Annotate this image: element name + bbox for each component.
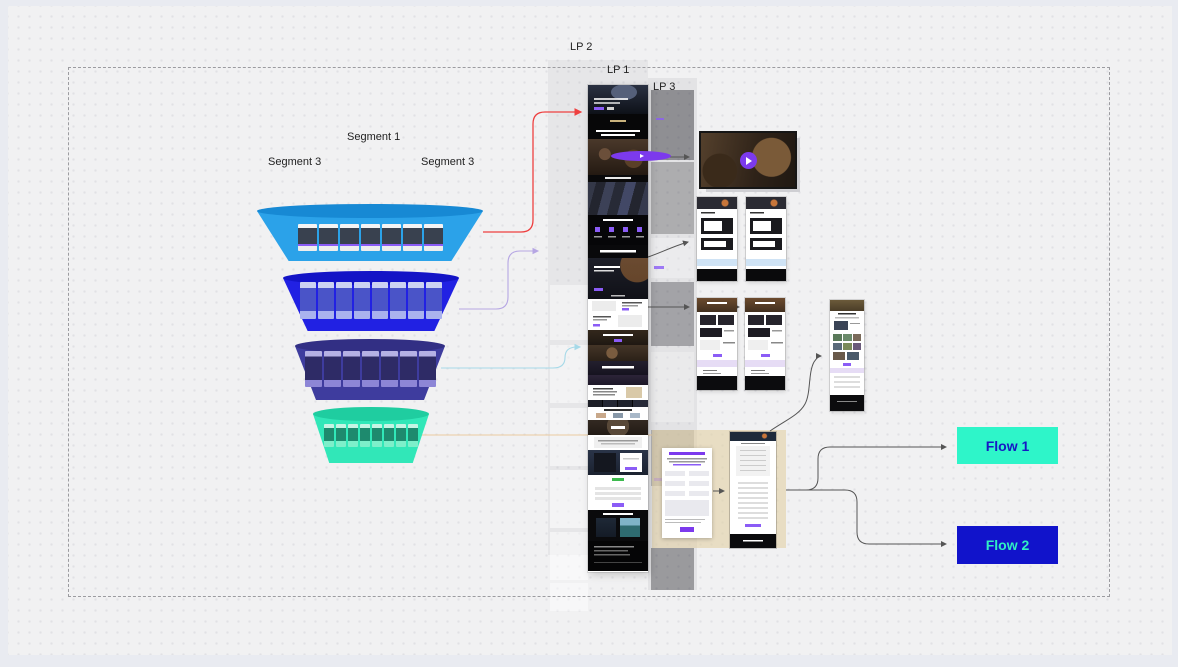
ad-thumbnail (382, 224, 401, 251)
label-segment-1[interactable]: Segment 1 (347, 131, 400, 143)
ad-thumbnail (362, 351, 379, 387)
ad-thumbnail (324, 424, 334, 447)
ad-thumbnail (336, 282, 352, 319)
lp1-text-card-section (588, 313, 648, 330)
email-screenshot-1[interactable] (697, 197, 737, 281)
flow-1-box[interactable]: Flow 1 (957, 427, 1058, 464)
lp1-posters-section (588, 510, 648, 541)
ad-thumbnail-row (313, 424, 429, 447)
lp1-stories-section (588, 407, 648, 420)
flow-2-label: Flow 2 (986, 537, 1030, 553)
lp1-people-section (588, 385, 648, 400)
ad-thumbnail (340, 224, 359, 251)
lp1-carousel-section (588, 258, 648, 299)
lp1-headline-band (588, 127, 648, 139)
ad-thumbnail (360, 424, 370, 447)
funnel-layer-4[interactable] (313, 407, 429, 463)
flow-2-box[interactable]: Flow 2 (957, 526, 1058, 564)
mobile-page-screenshot-1[interactable] (697, 298, 737, 390)
ad-thumbnail (419, 351, 436, 387)
funnel-layer-1[interactable] (257, 204, 483, 261)
flow-1-label: Flow 1 (986, 438, 1030, 454)
interest-form-card[interactable] (662, 448, 712, 538)
lp1-credits-band (588, 175, 648, 182)
play-icon (740, 152, 757, 169)
ad-thumbnail (384, 424, 394, 447)
lp1-catalogue-title (588, 245, 648, 258)
lp1-image-band-2 (588, 375, 648, 385)
lp1-image-band (588, 345, 648, 361)
form-mobile-screenshot[interactable] (730, 432, 776, 548)
ad-thumbnail-row (257, 224, 483, 251)
mobile-page-screenshot-3[interactable] (830, 300, 864, 411)
lp1-testimonial-section (588, 435, 648, 450)
play-icon (611, 151, 671, 161)
ad-thumbnail (319, 224, 338, 251)
label-segment-3-right[interactable]: Segment 3 (421, 156, 474, 168)
lp1-form-section (588, 484, 648, 510)
lp1-team-section (588, 420, 648, 435)
lp1-hero-section (588, 85, 648, 114)
label-segment-3-left[interactable]: Segment 3 (268, 156, 321, 168)
ad-thumbnail-row (283, 282, 459, 319)
lp1-logo-band (588, 114, 648, 127)
ad-thumbnail (318, 282, 334, 319)
ad-thumbnail (396, 424, 406, 447)
ad-thumbnail (372, 282, 388, 319)
funnel-layer-3[interactable] (295, 339, 445, 400)
lp1-thumbs-row (588, 400, 648, 407)
lp1-partner-logo-section (588, 475, 648, 484)
ad-thumbnail (424, 224, 443, 251)
funnel-layer-1-rim (257, 204, 483, 218)
ad-thumbnail (400, 351, 417, 387)
lp1-pricing-section (588, 450, 648, 475)
ad-thumbnail (408, 424, 418, 447)
mobile-page-screenshot-2[interactable] (745, 298, 785, 390)
ad-thumbnail (361, 224, 380, 251)
ad-thumbnail (390, 282, 406, 319)
lp1-collage-section (588, 182, 648, 215)
lp1-banner-section (588, 330, 648, 345)
lp1-features-section (588, 215, 648, 245)
ad-thumbnail-row (295, 351, 445, 387)
lp1-footer (588, 541, 648, 571)
label-lp1[interactable]: LP 1 (607, 64, 629, 76)
design-canvas-viewport: Segment 1 Segment 3 Segment 3 LP 2 LP 1 … (0, 0, 1178, 667)
funnel-layer-2[interactable] (283, 271, 459, 331)
ad-thumbnail (354, 282, 370, 319)
ad-thumbnail (300, 282, 316, 319)
ad-thumbnail (381, 351, 398, 387)
funnel-layer-4-rim (313, 407, 429, 421)
ad-thumbnail (298, 224, 317, 251)
lp1-landing-page-screenshot[interactable] (588, 85, 648, 572)
ad-thumbnail (324, 351, 341, 387)
ad-thumbnail (403, 224, 422, 251)
ad-thumbnail (426, 282, 442, 319)
ad-thumbnail (305, 351, 322, 387)
ad-thumbnail (372, 424, 382, 447)
ad-thumbnail (336, 424, 346, 447)
video-thumbnail[interactable] (699, 131, 797, 189)
ad-thumbnail (343, 351, 360, 387)
email-screenshot-2[interactable] (746, 197, 786, 281)
lp1-card-section (588, 299, 648, 313)
label-lp3[interactable]: LP 3 (653, 81, 675, 93)
lp1-program-title (588, 361, 648, 375)
ad-thumbnail (348, 424, 358, 447)
label-lp2[interactable]: LP 2 (570, 41, 592, 53)
ad-thumbnail (408, 282, 424, 319)
